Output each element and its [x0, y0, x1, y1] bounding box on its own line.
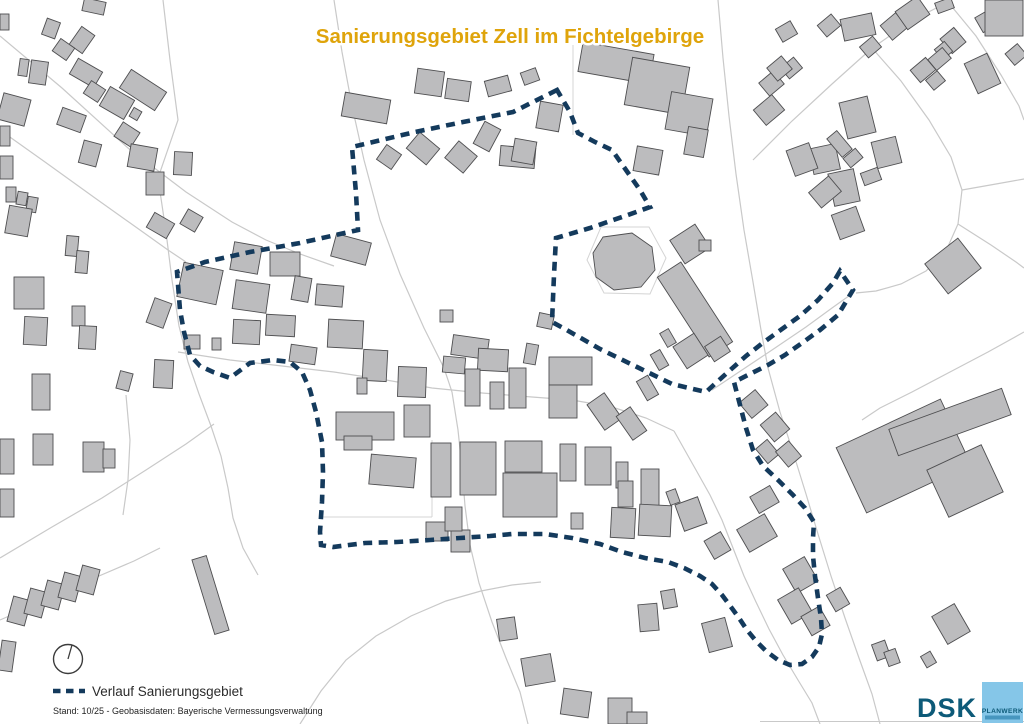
building: [230, 242, 262, 274]
building: [750, 486, 779, 514]
building: [477, 348, 508, 372]
building: [536, 101, 563, 132]
building: [521, 654, 555, 687]
building: [315, 284, 344, 307]
road: [962, 179, 1024, 190]
building: [14, 277, 44, 309]
building: [627, 712, 647, 724]
building: [935, 0, 955, 14]
building: [610, 507, 636, 538]
building: [0, 439, 14, 474]
building: [985, 0, 1023, 36]
building: [369, 454, 416, 488]
building: [406, 132, 439, 165]
logo-bar: [985, 716, 1020, 720]
building: [760, 412, 789, 442]
building: [0, 126, 10, 146]
building: [0, 156, 13, 179]
building: [397, 367, 426, 398]
building: [831, 206, 864, 239]
legend-label: Verlauf Sanierungsgebiet: [92, 684, 243, 699]
building: [114, 122, 140, 147]
page-title: Sanierungsgebiet Zell im Fichtelgebirge: [316, 25, 704, 48]
building: [964, 53, 1001, 93]
building: [146, 172, 164, 195]
building: [146, 298, 172, 329]
building: [560, 444, 576, 481]
building: [460, 442, 496, 495]
legend: Verlauf Sanierungsgebiet Stand: 10/25 - …: [53, 684, 323, 716]
building: [5, 205, 33, 237]
building: [704, 532, 731, 560]
building: [232, 280, 270, 313]
building: [587, 393, 622, 430]
building: [636, 375, 658, 401]
building: [925, 238, 981, 294]
building: [18, 58, 29, 76]
logo-unit-text: PLANWERK: [982, 708, 1023, 715]
building: [327, 319, 363, 349]
building: [638, 504, 672, 537]
building: [699, 240, 711, 251]
building: [737, 514, 778, 553]
building: [265, 314, 295, 336]
building: [702, 617, 733, 652]
building: [6, 187, 16, 202]
building: [560, 688, 591, 718]
building: [1005, 44, 1024, 66]
building: [341, 92, 390, 124]
building: [129, 107, 142, 120]
building: [490, 382, 504, 409]
building: [840, 13, 876, 41]
building: [23, 316, 47, 345]
building: [103, 449, 115, 468]
building: [920, 651, 936, 668]
road: [718, 0, 768, 368]
building: [618, 481, 633, 507]
road: [123, 395, 130, 515]
building: [75, 251, 89, 274]
building: [661, 589, 678, 609]
building: [57, 107, 87, 132]
building: [484, 75, 511, 97]
building: [884, 648, 900, 666]
building: [331, 234, 372, 266]
building: [82, 0, 106, 15]
building: [509, 368, 526, 408]
building: [0, 489, 14, 517]
map-canvas: Sanierungsgebiet Zell im Fichtelgebirge …: [0, 0, 1024, 724]
building: [127, 144, 158, 171]
building: [442, 356, 465, 374]
building: [776, 441, 802, 467]
building: [451, 530, 470, 552]
building: [42, 18, 61, 39]
company-logo: DSK PLANWERK: [917, 682, 1023, 723]
building: [16, 191, 28, 206]
building: [357, 378, 367, 394]
building: [232, 319, 260, 344]
building: [511, 138, 537, 164]
building: [376, 144, 401, 169]
building: [146, 212, 174, 238]
building: [78, 140, 101, 167]
building: [192, 556, 229, 635]
building: [344, 436, 372, 450]
building: [753, 95, 784, 126]
building: [817, 14, 840, 37]
road: [300, 582, 541, 724]
building: [83, 442, 104, 472]
building: [153, 360, 173, 389]
building: [549, 357, 592, 385]
building: [212, 338, 221, 350]
building: [871, 136, 902, 168]
building: [520, 68, 539, 86]
building: [523, 343, 538, 365]
building: [414, 68, 444, 97]
building: [445, 507, 462, 531]
road: [768, 368, 880, 724]
building: [69, 58, 102, 88]
building: [465, 369, 480, 406]
building: [445, 78, 472, 101]
building: [684, 126, 709, 157]
logo-company-text: DSK: [917, 693, 977, 723]
building: [32, 374, 50, 410]
building: [638, 603, 659, 632]
building: [0, 640, 16, 672]
building: [404, 405, 430, 437]
building: [177, 262, 223, 305]
north-arrow-icon: [54, 645, 83, 674]
buildings-layer: [0, 0, 1024, 724]
road: [712, 293, 853, 390]
building: [0, 93, 31, 126]
building: [173, 152, 192, 176]
building: [116, 371, 133, 392]
building: [497, 617, 518, 641]
building: [473, 121, 501, 152]
building: [826, 587, 849, 611]
building: [775, 21, 797, 42]
building: [666, 489, 680, 506]
building: [180, 209, 203, 232]
building: [660, 329, 677, 348]
building: [362, 349, 388, 381]
building: [0, 14, 9, 30]
building: [633, 146, 663, 175]
building: [505, 441, 542, 472]
building: [291, 276, 312, 303]
building: [72, 306, 85, 326]
building: [33, 434, 53, 465]
building: [76, 565, 100, 595]
building: [28, 60, 48, 85]
building: [650, 349, 669, 370]
church-building: [593, 233, 655, 290]
building: [839, 96, 876, 139]
building: [616, 407, 647, 441]
building: [571, 513, 583, 529]
building: [549, 385, 577, 418]
building: [932, 604, 971, 645]
road: [0, 424, 214, 558]
building: [585, 447, 611, 485]
map-page: Sanierungsgebiet Zell im Fichtelgebirge …: [0, 0, 1024, 724]
building: [503, 473, 557, 517]
building: [445, 141, 478, 173]
building: [78, 326, 96, 350]
building: [431, 443, 451, 497]
building: [270, 252, 300, 276]
building: [860, 167, 881, 185]
legend-note: Stand: 10/25 - Geobasisdaten: Bayerische…: [53, 706, 323, 716]
building: [440, 310, 453, 322]
